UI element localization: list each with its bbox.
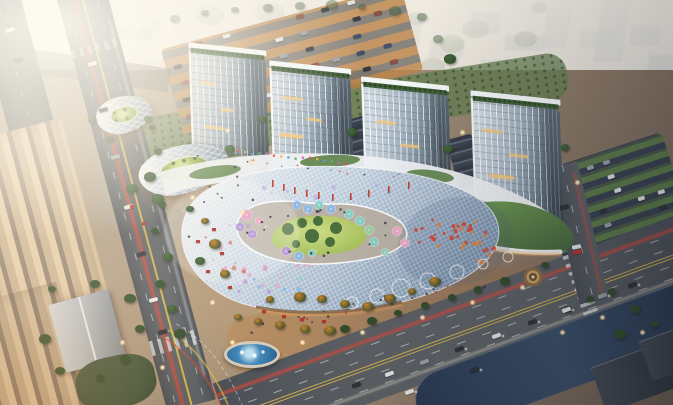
- tree: [317, 295, 327, 303]
- street-lamp-glow: [470, 300, 475, 305]
- car: [405, 389, 414, 396]
- tree: [630, 305, 639, 312]
- tree: [474, 286, 483, 293]
- scatter-layer: [0, 0, 673, 405]
- tree: [55, 367, 66, 376]
- tree: [258, 116, 266, 123]
- headlight-glow: [571, 308, 575, 312]
- car: [158, 329, 167, 335]
- car: [628, 282, 637, 289]
- tree: [234, 314, 241, 320]
- street-lamp-glow: [190, 195, 195, 200]
- tree: [444, 54, 457, 64]
- tree: [294, 292, 307, 302]
- car: [470, 367, 479, 374]
- tree: [362, 302, 373, 311]
- headlight-glow: [414, 390, 418, 394]
- tree: [500, 277, 511, 286]
- car: [14, 57, 23, 63]
- market-stall: [228, 286, 232, 289]
- street-lamp-glow: [160, 365, 165, 370]
- market-stall: [196, 240, 200, 243]
- tree: [394, 310, 402, 317]
- tree: [231, 7, 239, 14]
- market-stall: [322, 320, 326, 323]
- street-lamp-glow: [225, 128, 230, 133]
- car: [99, 107, 108, 113]
- street-lamp-glow: [640, 330, 645, 335]
- tree: [39, 334, 51, 344]
- car: [137, 251, 146, 257]
- street-lamp-glow: [575, 180, 580, 185]
- street-lamp-glow: [240, 210, 245, 215]
- market-stall: [282, 315, 286, 318]
- car: [111, 154, 120, 160]
- tree: [347, 128, 357, 136]
- car: [88, 61, 97, 67]
- tree: [614, 329, 626, 339]
- tree: [295, 2, 306, 11]
- street-lamp-glow: [460, 130, 465, 135]
- headlight-glow: [501, 334, 505, 338]
- car: [562, 307, 571, 314]
- tree: [126, 184, 137, 193]
- tree: [48, 286, 56, 293]
- tree: [163, 253, 173, 261]
- tree: [326, 0, 338, 9]
- tree: [201, 10, 209, 16]
- tree: [275, 321, 286, 330]
- tree: [151, 228, 159, 234]
- street-lamp-glow: [560, 330, 565, 335]
- tree: [149, 125, 156, 131]
- headlight-glow: [479, 368, 483, 372]
- tree: [90, 280, 100, 288]
- tree: [266, 296, 275, 303]
- tree: [389, 6, 402, 16]
- car: [6, 27, 15, 33]
- tree: [186, 206, 194, 212]
- tree: [106, 136, 114, 142]
- tree: [263, 4, 274, 12]
- market-stall: [206, 270, 210, 273]
- tree: [220, 270, 229, 278]
- tree: [417, 13, 426, 20]
- tree: [254, 318, 263, 325]
- tree: [144, 116, 152, 122]
- car: [492, 333, 501, 340]
- tree: [340, 300, 350, 308]
- tree: [124, 294, 135, 303]
- car: [352, 382, 361, 389]
- tree: [408, 288, 416, 295]
- tree: [88, 116, 96, 123]
- car: [560, 204, 569, 210]
- car: [149, 297, 158, 303]
- headlight-glow: [637, 283, 641, 287]
- street-lamp-glow: [520, 285, 525, 290]
- tree: [201, 218, 208, 224]
- tree: [448, 294, 457, 301]
- market-stall: [212, 228, 216, 231]
- tree: [324, 326, 335, 335]
- market-stall: [142, 222, 146, 225]
- tree: [120, 355, 130, 363]
- car: [385, 371, 394, 378]
- street-lamp-glow: [300, 340, 305, 345]
- tree: [561, 144, 570, 151]
- street-lamp-glow: [230, 340, 235, 345]
- tree: [209, 239, 222, 249]
- tree: [195, 257, 205, 265]
- headlight-glow: [607, 294, 611, 298]
- market-stall: [300, 318, 304, 321]
- tree: [144, 172, 156, 181]
- tree: [167, 305, 178, 314]
- street-lamp-glow: [250, 160, 255, 165]
- tree: [170, 15, 180, 23]
- tree: [154, 148, 163, 155]
- market-stall: [130, 205, 134, 208]
- tree: [155, 280, 165, 288]
- street-lamp-glow: [360, 330, 365, 335]
- tree: [421, 302, 430, 309]
- tree: [152, 194, 164, 204]
- tree: [443, 145, 453, 153]
- car: [573, 249, 582, 255]
- street-lamp-glow: [600, 315, 605, 320]
- tree: [225, 145, 235, 153]
- tree: [433, 35, 443, 43]
- tree: [367, 317, 377, 325]
- architectural-rendering: [0, 0, 673, 405]
- tree: [651, 321, 658, 327]
- market-stall: [220, 252, 224, 255]
- tree: [135, 325, 145, 333]
- headlight-glow: [537, 320, 541, 324]
- street-lamp-glow: [420, 315, 425, 320]
- tree: [429, 277, 440, 286]
- tree: [340, 325, 350, 333]
- market-stall: [262, 310, 266, 313]
- headlight-glow: [464, 347, 468, 351]
- tree: [541, 262, 549, 268]
- tree: [358, 4, 366, 10]
- tree: [174, 329, 186, 338]
- tree: [300, 325, 310, 333]
- street-lamp-glow: [120, 340, 125, 345]
- car: [598, 293, 607, 300]
- car: [528, 319, 537, 326]
- tree: [586, 296, 593, 302]
- street-lamp-glow: [210, 300, 215, 305]
- car: [455, 346, 464, 353]
- tree: [384, 294, 395, 303]
- car: [420, 359, 429, 366]
- tree: [96, 374, 104, 381]
